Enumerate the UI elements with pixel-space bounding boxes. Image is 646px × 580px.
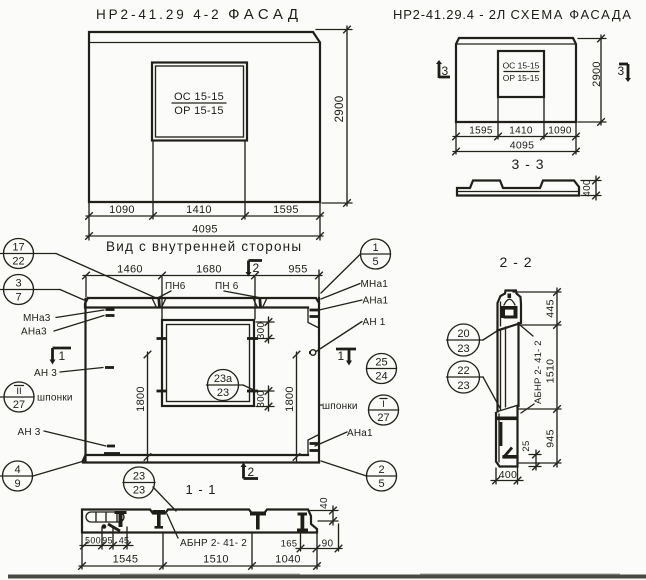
svg-text:ОС 15-15: ОС 15-15 [174, 91, 224, 103]
svg-text:шпонки: шпонки [37, 393, 73, 404]
svg-text:165: 165 [281, 539, 298, 550]
svg-text:45: 45 [119, 536, 130, 546]
svg-text:2900: 2900 [334, 96, 346, 123]
svg-text:1: 1 [59, 349, 66, 363]
svg-text:1040: 1040 [275, 554, 301, 566]
svg-text:ОС 15-15: ОС 15-15 [503, 61, 540, 71]
svg-text:1: 1 [372, 242, 378, 254]
svg-text:25: 25 [521, 440, 532, 451]
svg-text:1800: 1800 [135, 386, 147, 412]
svg-text:955: 955 [288, 264, 307, 276]
svg-text:90: 90 [322, 539, 334, 550]
svg-text:4095: 4095 [510, 140, 535, 152]
svg-text:24: 24 [375, 371, 387, 383]
svg-text:2900: 2900 [591, 61, 603, 87]
svg-text:95: 95 [102, 536, 113, 546]
svg-text:1680: 1680 [196, 264, 222, 276]
svg-text:1 - 1: 1 - 1 [185, 482, 216, 497]
svg-text:2: 2 [248, 465, 255, 479]
svg-text:ПН6: ПН6 [165, 281, 186, 292]
svg-text:1460: 1460 [117, 264, 143, 276]
svg-text:АБНР 2- 41- 2: АБНР 2- 41- 2 [180, 538, 247, 549]
svg-text:4: 4 [14, 464, 20, 476]
svg-text:400: 400 [499, 469, 517, 481]
svg-text:МНа1: МНа1 [361, 279, 389, 290]
svg-text:1410: 1410 [186, 204, 212, 216]
svg-text:23: 23 [217, 387, 229, 399]
svg-text:9: 9 [14, 478, 20, 490]
svg-text:3 - 3: 3 - 3 [511, 156, 544, 172]
svg-text:НР2-41.29.4 - 2Л СХЕМА ФАСАДА: НР2-41.29.4 - 2Л СХЕМА ФАСАДА [393, 7, 633, 22]
svg-text:1: 1 [338, 349, 345, 363]
svg-text:II: II [16, 386, 21, 397]
svg-text:АН 1: АН 1 [363, 317, 386, 328]
svg-text:445: 445 [545, 299, 557, 317]
svg-text:4095: 4095 [192, 224, 218, 236]
svg-text:АН 3: АН 3 [34, 368, 57, 379]
svg-text:3: 3 [442, 64, 449, 78]
svg-text:27: 27 [377, 412, 389, 424]
svg-text:23: 23 [457, 380, 469, 392]
svg-text:22: 22 [12, 256, 24, 268]
svg-text:3: 3 [15, 278, 21, 290]
svg-text:1090: 1090 [109, 204, 135, 216]
svg-text:1595: 1595 [273, 204, 299, 216]
svg-text:500: 500 [85, 536, 101, 546]
svg-text:АНа3: АНа3 [21, 327, 47, 338]
svg-text:23: 23 [133, 471, 145, 483]
svg-text:1545: 1545 [113, 554, 139, 566]
svg-text:шпонки: шпонки [322, 401, 358, 412]
svg-text:1800: 1800 [284, 386, 296, 412]
svg-text:Вид с внутренней стороны: Вид с внутренней стороны [106, 239, 302, 254]
svg-text:40: 40 [319, 497, 330, 509]
svg-text:ПН 6: ПН 6 [215, 281, 239, 292]
svg-text:22: 22 [457, 365, 469, 377]
svg-text:27: 27 [13, 399, 25, 411]
svg-text:23а: 23а [214, 373, 233, 385]
svg-text:НР2-41.29 4-2 ФАСАД: НР2-41.29 4-2 ФАСАД [96, 6, 303, 23]
svg-text:25: 25 [375, 357, 387, 369]
svg-text:ОР 15-15: ОР 15-15 [174, 105, 223, 117]
svg-text:2 - 2: 2 - 2 [499, 254, 532, 270]
svg-text:400: 400 [582, 179, 593, 197]
svg-text:I: I [382, 399, 385, 410]
svg-text:ОР 15-15: ОР 15-15 [503, 73, 540, 83]
svg-text:2: 2 [378, 464, 384, 476]
svg-text:7: 7 [15, 292, 21, 304]
svg-text:3: 3 [618, 64, 625, 78]
svg-text:1510: 1510 [545, 359, 557, 384]
svg-text:МНа3: МНа3 [23, 313, 51, 324]
svg-text:20: 20 [457, 328, 469, 340]
svg-text:1410: 1410 [509, 126, 533, 137]
svg-text:300: 300 [256, 390, 267, 408]
svg-text:5: 5 [378, 478, 384, 490]
svg-text:АН 3: АН 3 [18, 427, 41, 438]
svg-text:АНа1: АНа1 [347, 428, 373, 439]
svg-text:300: 300 [256, 322, 267, 340]
svg-text:2: 2 [253, 261, 260, 275]
svg-text:23: 23 [133, 485, 145, 497]
svg-text:1090: 1090 [548, 126, 572, 137]
svg-text:5: 5 [372, 256, 378, 268]
svg-text:1595: 1595 [469, 126, 493, 137]
svg-text:АНа1: АНа1 [363, 296, 389, 307]
svg-text:23: 23 [457, 343, 469, 355]
svg-text:945: 945 [545, 429, 557, 447]
svg-text:17: 17 [12, 242, 24, 254]
svg-text:АБНР 2- 41- 2: АБНР 2- 41- 2 [533, 340, 544, 404]
svg-text:1510: 1510 [203, 554, 229, 566]
